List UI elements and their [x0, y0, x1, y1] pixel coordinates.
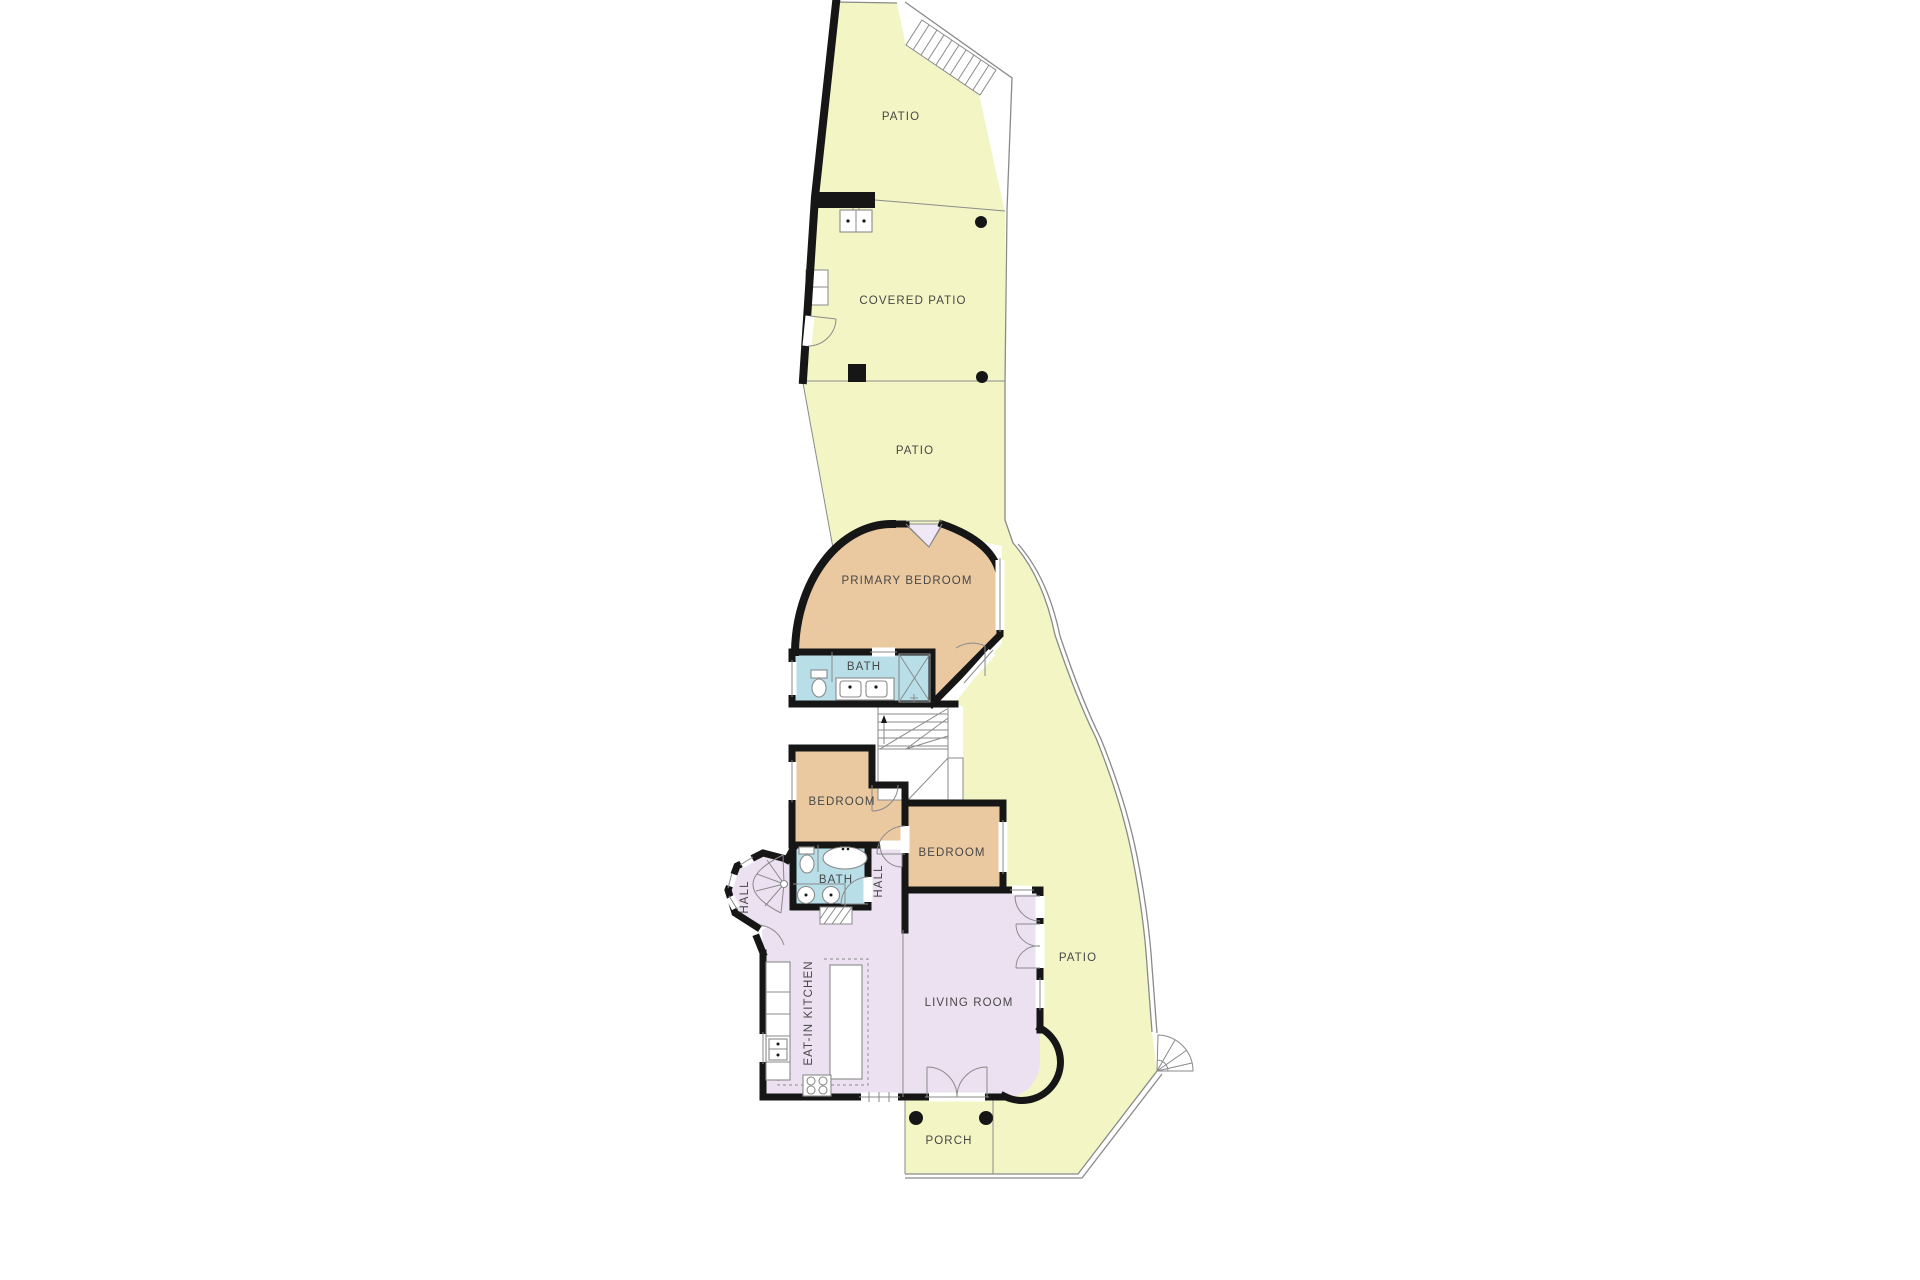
floor-plan-page: PATIO COVERED PATIO PATIO PRIMARY BEDROO… — [0, 0, 1920, 1280]
stove-fixture — [803, 1075, 831, 1096]
room-label-covered-patio: COVERED PATIO — [859, 295, 966, 307]
hatched-closet — [820, 907, 852, 924]
room-label-hall-tower: HALL — [739, 880, 751, 913]
porch-column — [909, 1111, 923, 1125]
toilet-fixture — [799, 847, 814, 854]
floor-plan: PATIO COVERED PATIO PATIO PRIMARY BEDROO… — [0, 0, 1920, 1280]
room-label-kitchen: EAT-IN KITCHEN — [803, 960, 815, 1065]
porch-column — [979, 1111, 993, 1125]
room-label-patio-top: PATIO — [882, 111, 920, 123]
room-label-patio-middle: PATIO — [896, 445, 934, 457]
room-label-bedroom-right: BEDROOM — [918, 847, 985, 859]
toilet-fixture — [812, 679, 826, 697]
room-label-primary-bath: BATH — [847, 661, 881, 673]
room-label-patio-right: PATIO — [1059, 952, 1097, 964]
exterior-fan-stairs — [1157, 1035, 1193, 1071]
toilet-fixture — [811, 670, 827, 678]
post-column — [975, 216, 987, 228]
room-label-bedroom-left: BEDROOM — [808, 796, 875, 808]
kitchen-island — [830, 965, 862, 1079]
toilet-fixture — [800, 855, 814, 873]
room-label-primary-bedroom: PRIMARY BEDROOM — [841, 575, 972, 587]
room-label-hall-upper: HALL — [873, 864, 885, 897]
post-column — [976, 371, 988, 383]
room-label-porch: PORCH — [925, 1135, 972, 1147]
room-label-living-room: LIVING ROOM — [925, 997, 1014, 1009]
column — [848, 364, 866, 382]
bathtub-fixture — [823, 847, 867, 869]
room-label-hall-bath: BATH — [819, 874, 853, 886]
